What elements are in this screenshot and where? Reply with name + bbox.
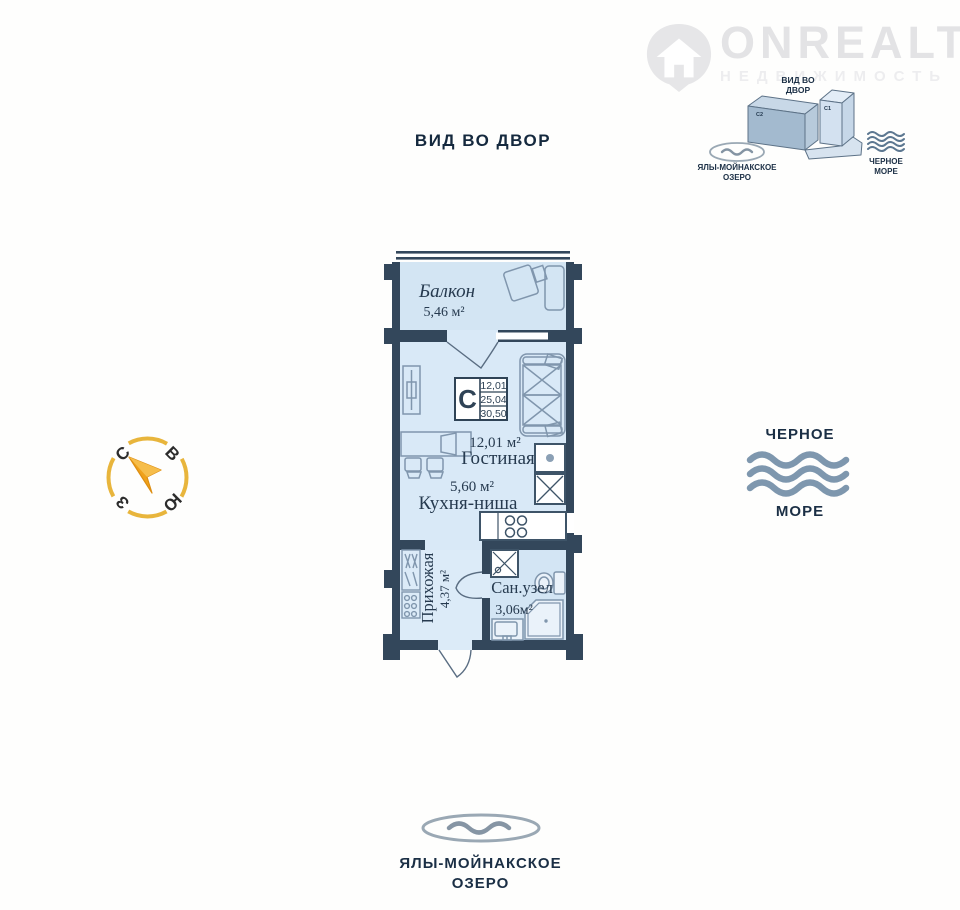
compass-west-label: З (112, 492, 133, 513)
hallway-area: 4,37 м² (437, 570, 452, 608)
minimap-view-label-line1: ВИД ВО (781, 75, 815, 85)
balcony-area: 5,46 м² (423, 305, 464, 320)
minimap-view-label-line2: ДВОР (786, 85, 811, 95)
compass-rose: С В З Ю (100, 430, 195, 525)
sink-unit-icon (535, 474, 565, 504)
minimap-lake-label-line1: ЯЛЫ-МОЙНАКСКОЕ (697, 163, 777, 172)
sea-waves-icon (744, 451, 856, 497)
counter-stove-icon (480, 512, 566, 540)
info-area-1: 12,01 (480, 380, 506, 392)
kitchen-window (566, 513, 574, 533)
building-c2-label: С2 (756, 112, 763, 118)
compass-east-label: В (161, 443, 183, 465)
logo-wordmark: ONREALT (720, 20, 960, 66)
balcony-railing (396, 251, 570, 260)
apartment-info-box: С 12,01 25,04 30,50 (455, 378, 507, 420)
lake-block: ЯЛЫ-МОЙНАКСКОЕ ОЗЕРО (398, 812, 563, 894)
minimap-lake-icon (710, 143, 764, 161)
building-c1-label: С1 (824, 106, 831, 112)
sea-label-line1: ЧЕРНОЕ (738, 426, 862, 443)
site-minimap: ВИД ВО ДВОР С2 С1 ЯЛЫ-МОЙНАКСКОЕ ОЗЕРО (690, 66, 960, 188)
balcony-door-opening (447, 330, 498, 342)
bathroom-area: 3,06м² (495, 603, 533, 618)
balcony-label: Балкон (418, 281, 475, 302)
bath-sink-icon (492, 619, 523, 640)
bathroom-label: Сан.узел (491, 578, 553, 597)
compass-needle-highlight (129, 457, 161, 477)
info-area-3: 30,50 (480, 408, 506, 420)
lake-label-line1: ЯЛЫ-МОЙНАКСКОЕ (398, 854, 563, 874)
building-c2 (748, 96, 818, 150)
minimap-lake-label-line2: ОЗЕРО (723, 173, 751, 182)
black-sea-block: ЧЕРНОЕ МОРЕ (738, 426, 862, 520)
minimap-sea-waves-icon (868, 132, 904, 151)
sea-label-line2: МОРЕ (738, 503, 862, 520)
lake-icon (419, 812, 543, 844)
lake-label-line2: ОЗЕРО (398, 874, 563, 894)
compass-needle-icon (129, 457, 161, 493)
entrance-opening (438, 640, 472, 650)
minimap-sea-label-line2: МОРЕ (874, 167, 898, 176)
minimap-sea-label-line1: ЧЕРНОЕ (869, 157, 903, 166)
floorplan-page: ONREALT НЕДВИЖИМОСТЬ ВИД ВО ДВОР С2 С1 (0, 0, 960, 910)
info-area-2: 25,04 (480, 394, 506, 406)
fridge-dot (546, 454, 554, 462)
hallway-label: Прихожая (418, 552, 437, 623)
kitchen-label: Кухня-ниша (419, 493, 518, 514)
living-label: Гостиная (461, 448, 535, 469)
living-window (496, 333, 548, 340)
washing-machine-icon (491, 550, 518, 577)
building-c1 (820, 90, 854, 146)
info-letter: С (458, 384, 477, 414)
apartment-floor-plan: С 12,01 25,04 30,50 Балкон 5,46 м² 12,01… (383, 248, 583, 693)
compass-north-label: С (112, 443, 134, 465)
entrance-door-swing (439, 650, 471, 677)
view-direction-title: ВИД ВО ДВОР (383, 131, 583, 151)
